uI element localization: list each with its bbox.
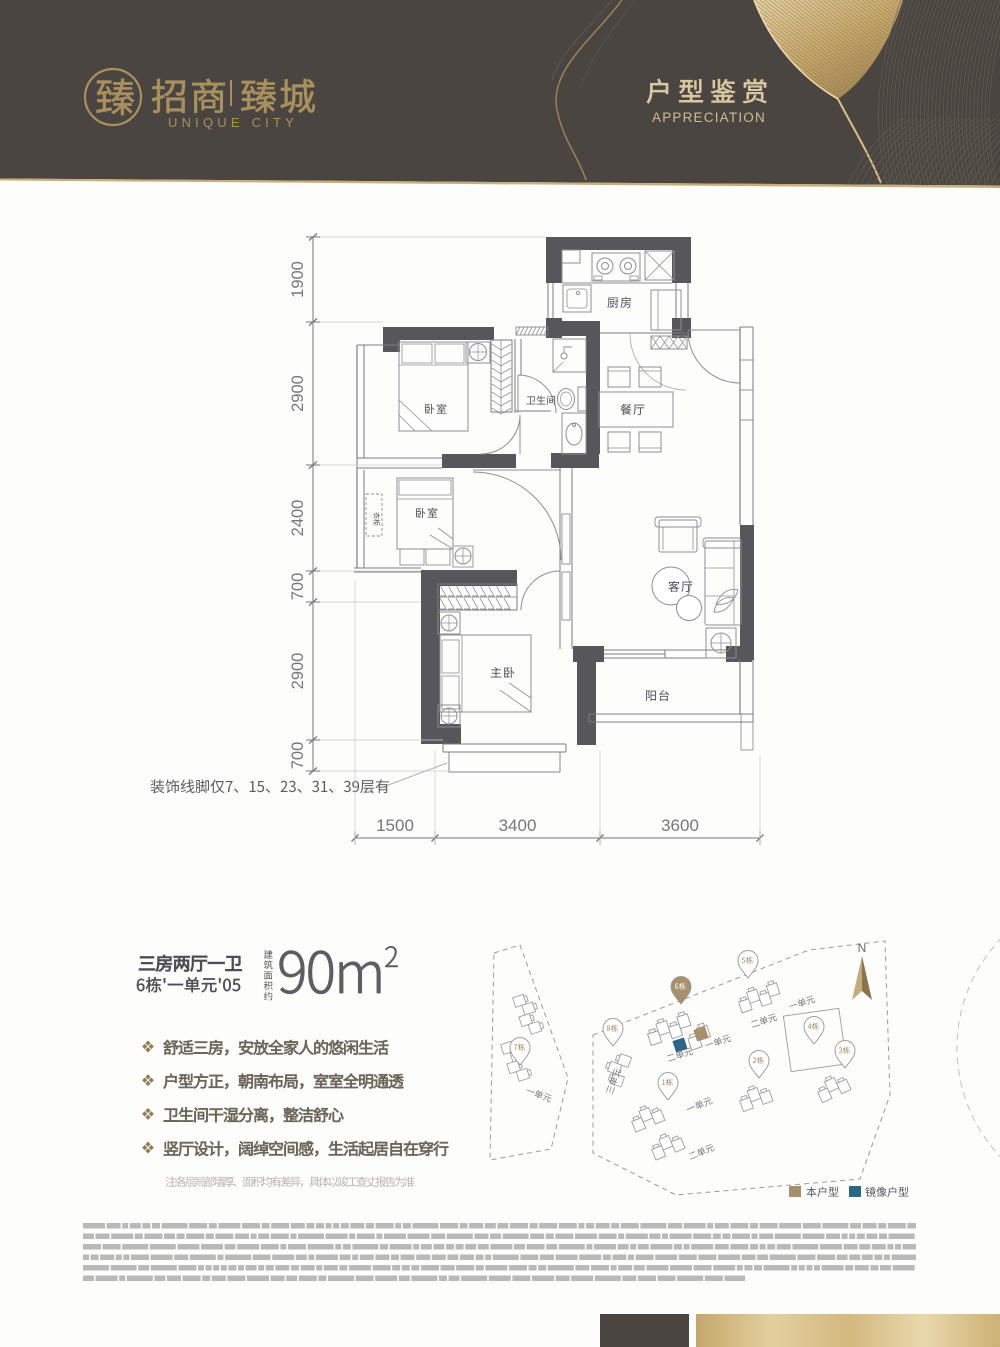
svg-text:3400: 3400 [499, 816, 537, 835]
svg-text:APPRECIATION: APPRECIATION [652, 110, 766, 125]
svg-text:1500: 1500 [376, 816, 414, 835]
svg-text:N: N [858, 941, 867, 955]
svg-text:1900: 1900 [289, 261, 307, 298]
svg-text:3600: 3600 [661, 816, 699, 835]
svg-text:2900: 2900 [289, 375, 307, 412]
svg-text:700: 700 [289, 573, 307, 601]
svg-text:UNIQUE CITY: UNIQUE CITY [168, 115, 298, 130]
svg-text:700: 700 [289, 742, 307, 770]
svg-text:2400: 2400 [289, 500, 307, 537]
svg-text:2900: 2900 [289, 653, 307, 690]
